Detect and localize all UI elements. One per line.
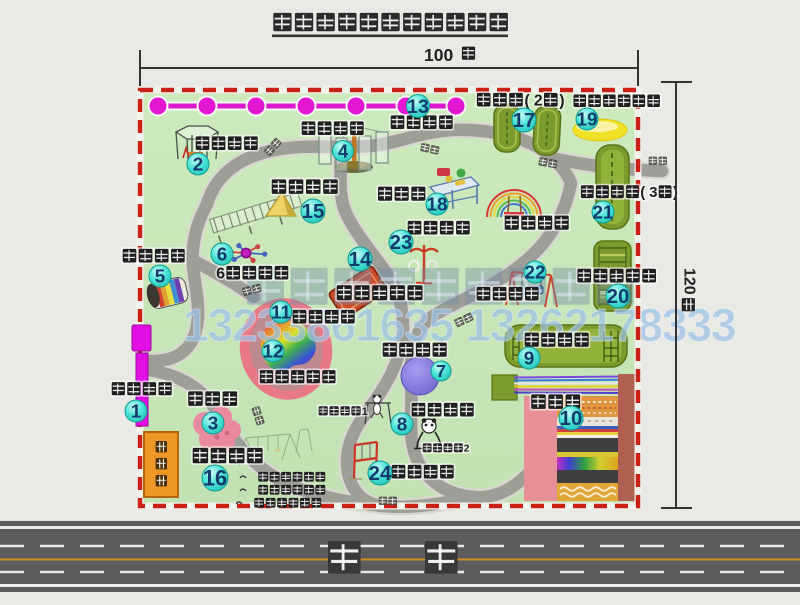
svg-text:24: 24 — [369, 463, 392, 485]
svg-text:): ) — [559, 92, 564, 110]
svg-text:11: 11 — [271, 303, 291, 324]
svg-text:6: 6 — [216, 265, 225, 283]
svg-text:12: 12 — [262, 342, 283, 363]
svg-text:19: 19 — [576, 110, 597, 131]
svg-text:1: 1 — [362, 406, 368, 418]
svg-text:100: 100 — [424, 45, 453, 65]
svg-text:9: 9 — [524, 349, 535, 370]
svg-text:2: 2 — [464, 444, 470, 455]
svg-text:13: 13 — [407, 96, 429, 118]
svg-text:4: 4 — [338, 141, 349, 161]
svg-text:1: 1 — [131, 402, 142, 423]
svg-text:2: 2 — [193, 155, 204, 176]
svg-text:3: 3 — [208, 414, 219, 435]
svg-text:17: 17 — [513, 110, 536, 132]
svg-text:8: 8 — [397, 415, 408, 436]
svg-text:7: 7 — [436, 361, 446, 381]
svg-text:20: 20 — [607, 286, 630, 308]
svg-text:3: 3 — [649, 184, 657, 201]
svg-text:2: 2 — [534, 92, 543, 110]
svg-text:23: 23 — [390, 232, 413, 254]
svg-text:(: ( — [524, 92, 530, 110]
svg-text:18: 18 — [426, 195, 447, 216]
svg-text:6: 6 — [217, 245, 228, 266]
svg-text:10: 10 — [560, 408, 583, 430]
svg-text:16: 16 — [203, 466, 227, 491]
svg-text:14: 14 — [349, 249, 372, 271]
svg-text:22: 22 — [524, 263, 545, 284]
svg-text:15: 15 — [302, 201, 325, 223]
svg-text:21: 21 — [592, 203, 613, 224]
svg-text:5: 5 — [155, 267, 166, 288]
svg-text:120: 120 — [681, 268, 698, 295]
